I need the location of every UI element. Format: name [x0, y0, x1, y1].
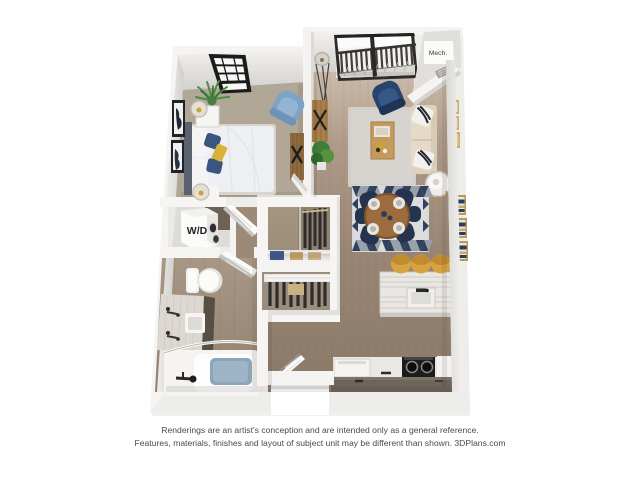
svg-text:Mech.: Mech. [429, 50, 448, 57]
svg-text:W/D: W/D [187, 225, 208, 237]
